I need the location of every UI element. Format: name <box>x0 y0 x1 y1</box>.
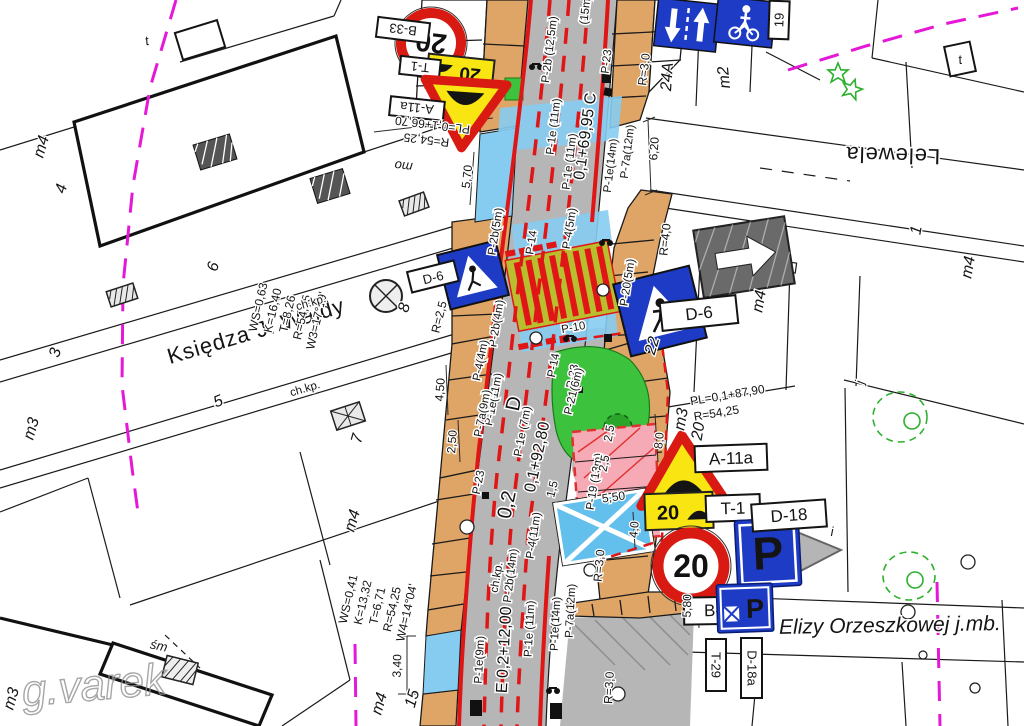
sign-contraflow-arrows <box>654 0 721 52</box>
svg-text:19: 19 <box>771 13 786 28</box>
parcel-number: 24A <box>658 62 677 93</box>
parcel-label-t-box: t <box>944 42 976 77</box>
sign-pedestrian-bike-path <box>714 0 776 48</box>
sign-label-t29: T-29 <box>706 639 726 691</box>
svg-text:T-1: T-1 <box>720 499 745 519</box>
sign-label-t1-top: T-1 <box>399 56 441 78</box>
dimension-label: 4,0 <box>626 520 642 538</box>
parcel-label-mo: mo <box>394 158 414 175</box>
dimension-label: 4,50 <box>432 377 448 402</box>
dimension-label: 2,50 <box>444 429 460 454</box>
parcel-number: m2 <box>715 65 734 89</box>
parcel-number: 20 <box>688 421 708 443</box>
parking-p-glyph: P <box>751 526 784 580</box>
sign-arrow-existing-removed <box>693 216 795 298</box>
dimension-label: 5,80 <box>680 594 695 618</box>
svg-text:A-11a: A-11a <box>709 448 754 469</box>
sign-label-d18a: D-18a <box>741 638 762 698</box>
dimension-label: 6,20 <box>646 136 662 161</box>
dimension-label: 2,5 <box>596 454 613 473</box>
parking-p-glyph: P <box>746 593 765 624</box>
dimension-label: 3,40 <box>390 654 405 678</box>
svg-text:D-18a: D-18a <box>745 650 760 686</box>
svg-text:20: 20 <box>673 548 709 584</box>
svg-text:T-29: T-29 <box>709 652 724 678</box>
svg-text:20: 20 <box>657 502 680 525</box>
parcel-label-19-box: 19 <box>768 1 789 40</box>
dimension-label: 5,70 <box>459 164 475 189</box>
marking-label: P-1e(9m) <box>473 635 488 684</box>
dimension-label: 2,5 <box>601 424 618 443</box>
svg-text:D-18: D-18 <box>770 505 808 527</box>
sign-d18a-reserved-parking: P <box>716 583 774 633</box>
svg-text:D-6: D-6 <box>684 303 713 325</box>
sign-t1-plate-right: 20 <box>644 492 713 530</box>
dimension-label: R=3,0 <box>591 549 608 583</box>
traffic-organization-plan: 20 B-33 20 T-1 A-11a 19 <box>0 0 1024 726</box>
sign-label-a11a-right: A-11a <box>695 444 768 472</box>
dimension-label: R=3,0 <box>601 671 617 704</box>
dimension-label: 8,0 <box>651 431 667 449</box>
street-name-lelewela: Lelewela <box>845 142 940 169</box>
svg-text:T-1: T-1 <box>410 59 430 76</box>
street-name-orzeszkowej: Elizy Orzeszkowej j.mb. <box>779 612 1001 639</box>
sign-label-d18: D-18 <box>751 499 827 531</box>
